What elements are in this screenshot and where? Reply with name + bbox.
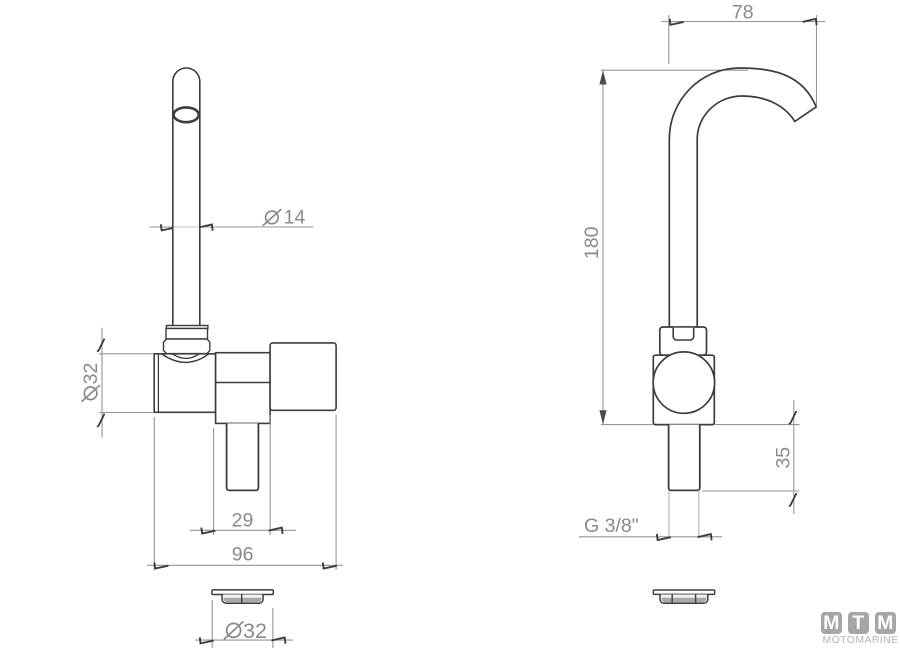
svg-text:32: 32 [80, 363, 102, 385]
svg-text:29: 29 [232, 510, 254, 532]
svg-text:35: 35 [773, 447, 795, 469]
svg-text:32: 32 [243, 619, 267, 643]
svg-text:14: 14 [284, 207, 306, 229]
svg-text:180: 180 [581, 226, 603, 259]
svg-text:78: 78 [732, 2, 754, 24]
svg-text:96: 96 [232, 544, 254, 566]
svg-text:G 3/8": G 3/8" [584, 515, 639, 537]
